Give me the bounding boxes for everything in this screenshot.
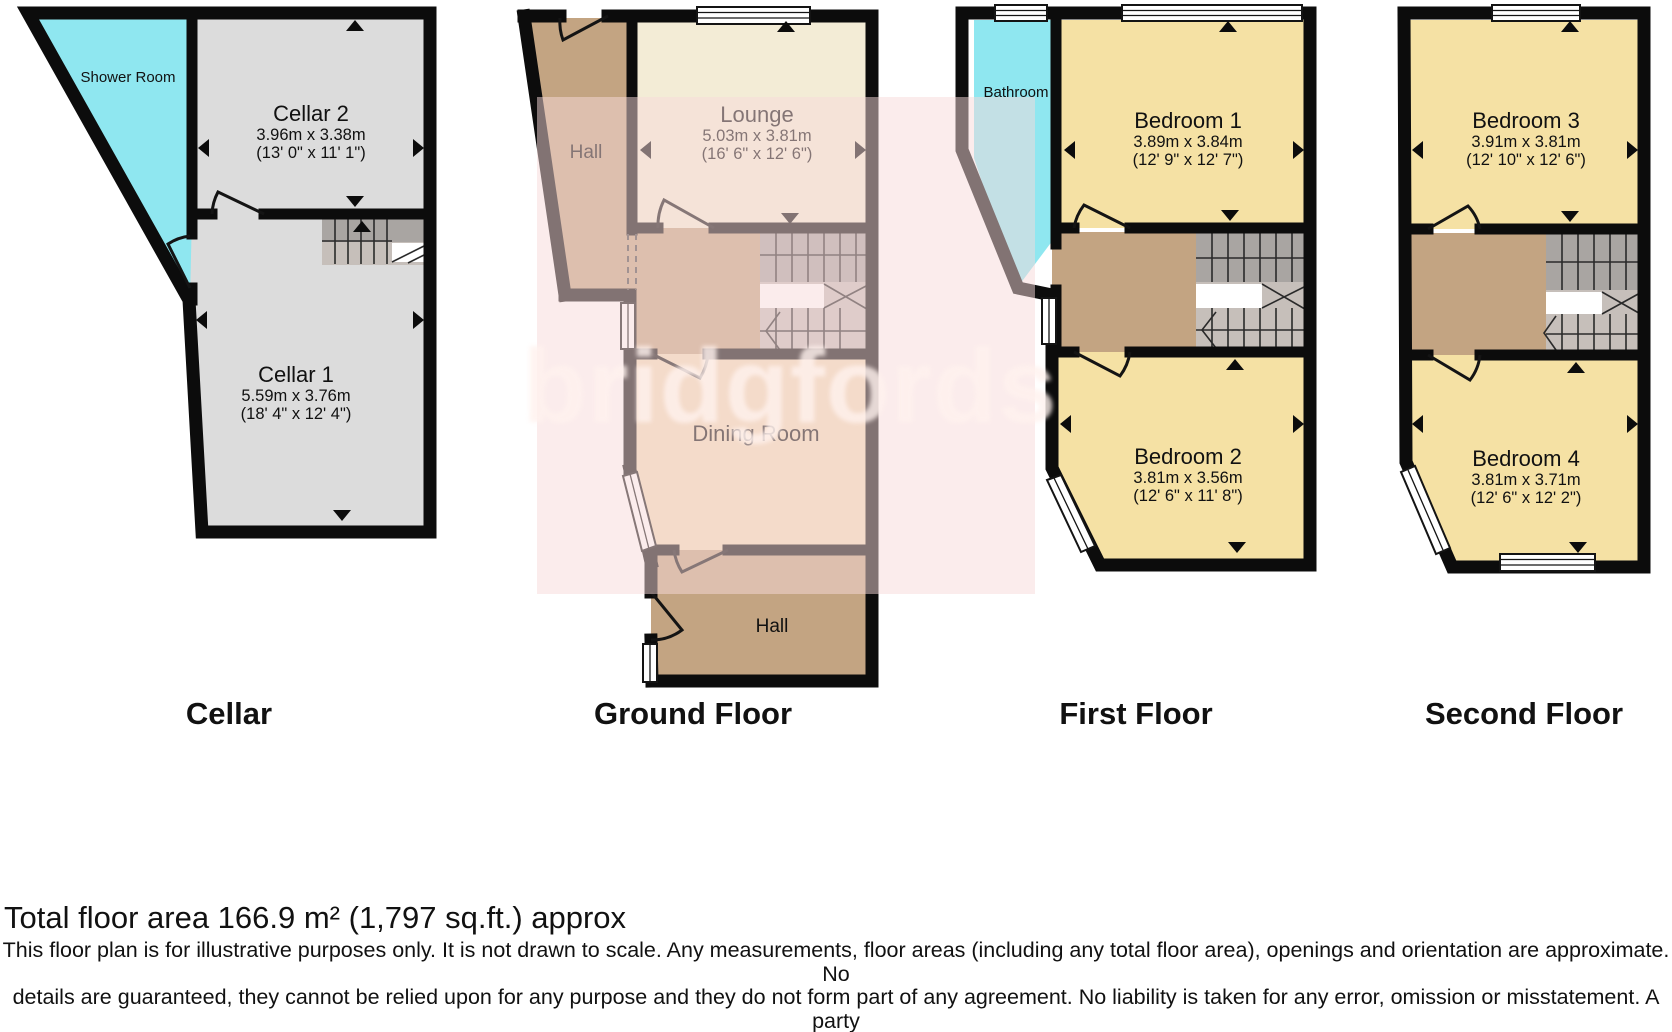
room-dims-bedroom-4-ft: (12' 6" x 12' 2") bbox=[1471, 489, 1582, 507]
room-label-bedroom-2: Bedroom 2 bbox=[1134, 444, 1242, 469]
room-dims-cellar-1-ft: (18' 4" x 12' 4") bbox=[241, 405, 352, 423]
floor-label-ground: Ground Floor bbox=[594, 696, 792, 731]
room-dims-bedroom-2-ft: (12' 6" x 11' 8") bbox=[1133, 487, 1242, 505]
floor-label-cellar: Cellar bbox=[186, 696, 272, 731]
room-label-cellar-2: Cellar 2 bbox=[273, 101, 349, 126]
room-label-hall-lower: Hall bbox=[756, 616, 789, 637]
room-dims-cellar-2-m: 3.96m x 3.38m bbox=[256, 126, 365, 144]
second-landing bbox=[1408, 233, 1546, 355]
floor-label-second: Second Floor bbox=[1425, 696, 1623, 731]
room-dims-bedroom-3-m: 3.91m x 3.81m bbox=[1471, 133, 1580, 151]
first-landing bbox=[1052, 232, 1196, 352]
total-floor-area: Total floor area 166.9 m² (1,797 sq.ft.)… bbox=[4, 900, 626, 936]
floor-plan-second: Bedroom 3 3.91m x 3.81m (12' 10" x 12' 6… bbox=[1401, 5, 1644, 571]
room-dims-cellar-2-ft: (13' 0" x 11' 1") bbox=[256, 144, 365, 162]
second-stairs bbox=[1544, 233, 1644, 355]
disclaimer-line-1: This floor plan is for illustrative purp… bbox=[0, 939, 1672, 986]
room-label-bedroom-4: Bedroom 4 bbox=[1472, 446, 1580, 471]
first-stairs bbox=[1196, 232, 1310, 352]
floor-label-first: First Floor bbox=[1059, 696, 1212, 731]
room-dims-bedroom-3-ft: (12' 10" x 12' 6") bbox=[1466, 151, 1586, 169]
room-label-bedroom-3: Bedroom 3 bbox=[1472, 108, 1580, 133]
room-label-shower-room: Shower Room bbox=[80, 69, 175, 86]
room-dims-bedroom-1-ft: (12' 9" x 12' 7") bbox=[1133, 151, 1244, 169]
cellar-stairs bbox=[322, 219, 430, 265]
floor-plan-cellar: Shower Room Cellar 2 3.96m x 3.38m (13' … bbox=[28, 13, 430, 532]
disclaimer: This floor plan is for illustrative purp… bbox=[0, 939, 1672, 1032]
room-label-cellar-1: Cellar 1 bbox=[258, 362, 334, 387]
room-dims-bedroom-1-m: 3.89m x 3.84m bbox=[1133, 133, 1242, 151]
floor-labels: Cellar Ground Floor First Floor Second F… bbox=[186, 696, 1623, 731]
watermark-text: bridgfords bbox=[523, 328, 1058, 445]
watermark: bridgfords bbox=[523, 97, 1058, 594]
room-dims-cellar-1-m: 5.59m x 3.76m bbox=[241, 387, 350, 405]
room-dims-bedroom-4-m: 3.81m x 3.71m bbox=[1471, 471, 1580, 489]
floorplan-page: Shower Room Cellar 2 3.96m x 3.38m (13' … bbox=[0, 0, 1672, 1032]
disclaimer-line-2: details are guaranteed, they cannot be r… bbox=[0, 986, 1672, 1032]
room-dims-bedroom-2-m: 3.81m x 3.56m bbox=[1133, 469, 1242, 487]
floorplan-drawing: Shower Room Cellar 2 3.96m x 3.38m (13' … bbox=[0, 0, 1672, 1032]
room-label-bedroom-1: Bedroom 1 bbox=[1134, 108, 1242, 133]
